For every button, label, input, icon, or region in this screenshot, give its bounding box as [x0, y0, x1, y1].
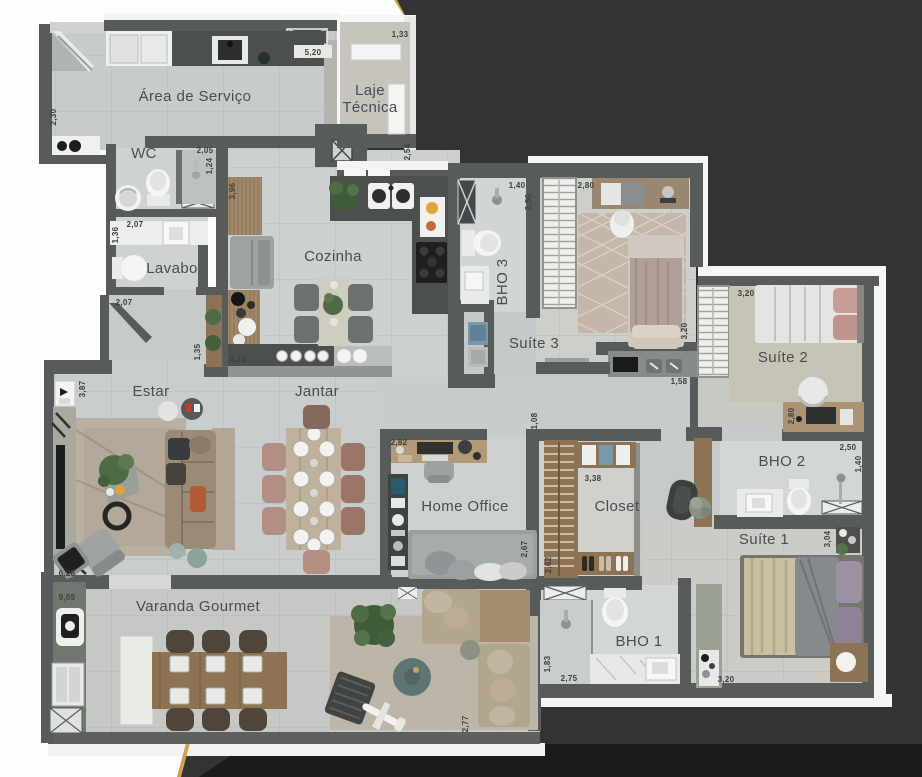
- svg-text:1,40: 1,40: [854, 455, 863, 472]
- svg-text:Suíte 1: Suíte 1: [739, 531, 789, 548]
- svg-text:Varanda Gourmet: Varanda Gourmet: [136, 598, 261, 615]
- svg-text:Jantar: Jantar: [295, 383, 339, 400]
- svg-text:Lavabo: Lavabo: [146, 260, 198, 277]
- svg-text:2,05: 2,05: [197, 146, 214, 155]
- svg-text:Suíte 2: Suíte 2: [758, 349, 808, 366]
- svg-text:2,50: 2,50: [524, 193, 533, 210]
- svg-text:3,96: 3,96: [228, 182, 237, 199]
- svg-text:1,33: 1,33: [392, 30, 409, 39]
- svg-text:1,58: 1,58: [671, 377, 688, 386]
- svg-text:2,67: 2,67: [520, 540, 529, 557]
- svg-text:1,24: 1,24: [205, 157, 214, 174]
- svg-text:3,20: 3,20: [718, 675, 735, 684]
- svg-text:6,28: 6,28: [59, 569, 76, 578]
- svg-text:2,80: 2,80: [578, 181, 595, 190]
- svg-text:9,05: 9,05: [59, 593, 76, 602]
- svg-text:1,83: 1,83: [543, 655, 552, 672]
- svg-text:5,20: 5,20: [305, 48, 322, 57]
- svg-text:BHO 3: BHO 3: [494, 258, 511, 305]
- svg-text:WC: WC: [131, 145, 157, 162]
- svg-text:2,80: 2,80: [787, 407, 796, 424]
- svg-text:BHO 1: BHO 1: [615, 633, 662, 650]
- svg-text:2,07: 2,07: [116, 298, 133, 307]
- svg-text:3,20: 3,20: [680, 322, 689, 339]
- svg-text:4,24: 4,24: [230, 355, 247, 364]
- svg-text:2,77: 2,77: [461, 715, 470, 732]
- svg-text:Home Office: Home Office: [421, 498, 509, 515]
- svg-text:1,36: 1,36: [111, 226, 120, 243]
- svg-text:2,54: 2,54: [403, 143, 412, 160]
- svg-text:Técnica: Técnica: [342, 99, 398, 116]
- svg-text:1,40: 1,40: [509, 181, 526, 190]
- svg-text:Laje: Laje: [355, 82, 385, 99]
- svg-text:3,04: 3,04: [823, 530, 832, 547]
- svg-text:BHO 2: BHO 2: [758, 453, 805, 470]
- svg-text:3,87: 3,87: [78, 380, 87, 397]
- svg-text:2,50: 2,50: [840, 443, 857, 452]
- svg-text:Cozinha: Cozinha: [304, 248, 362, 265]
- svg-text:2,82: 2,82: [391, 438, 408, 447]
- svg-text:2,75: 2,75: [561, 674, 578, 683]
- svg-text:Estar: Estar: [132, 383, 169, 400]
- svg-text:2,30: 2,30: [49, 108, 58, 125]
- svg-text:3,20: 3,20: [738, 289, 755, 298]
- svg-text:2,62: 2,62: [544, 556, 553, 573]
- svg-text:3,38: 3,38: [585, 474, 602, 483]
- svg-text:Closet: Closet: [595, 498, 640, 515]
- svg-text:1,08: 1,08: [530, 412, 539, 429]
- svg-text:2,07: 2,07: [127, 220, 144, 229]
- svg-text:1,35: 1,35: [193, 343, 202, 360]
- svg-text:Suíte 3: Suíte 3: [509, 335, 559, 352]
- svg-text:Área de Serviço: Área de Serviço: [139, 88, 252, 105]
